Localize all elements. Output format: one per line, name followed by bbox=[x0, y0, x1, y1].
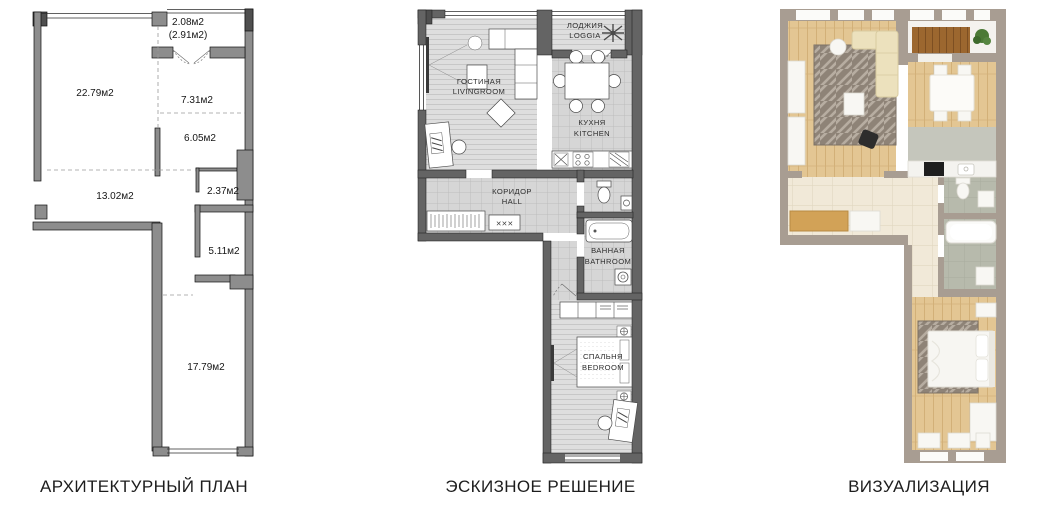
side-table bbox=[844, 93, 864, 115]
living-label-ru: ГОСТИНАЯ bbox=[457, 77, 501, 86]
hall-area: 13.02м2 bbox=[96, 191, 134, 202]
sink-icon bbox=[958, 164, 974, 175]
caption-visualization: ВИЗУАЛИЗАЦИЯ bbox=[800, 477, 1038, 497]
loggia-label-en: LOGGIA bbox=[569, 31, 601, 40]
toilet-icon bbox=[597, 181, 611, 203]
bathroom-label-ru: ВАННАЯ bbox=[591, 246, 625, 255]
dining-table bbox=[930, 75, 974, 111]
kitchen-area: 7.31м2 bbox=[181, 95, 213, 106]
cooktop-icon bbox=[924, 162, 944, 176]
bedroom-label-en: BEDROOM bbox=[582, 363, 624, 372]
bedroom-desk-icon bbox=[608, 400, 637, 443]
shoe-rack-marks: ✕✕✕ bbox=[496, 221, 514, 228]
hall-label-ru: КОРИДОР bbox=[492, 187, 532, 196]
bedroom-wardrobe-icon bbox=[560, 302, 632, 318]
wardrobe-icon bbox=[427, 211, 485, 231]
walls bbox=[33, 9, 253, 456]
living-label-en: LIVINGROOM bbox=[453, 87, 506, 96]
media-unit bbox=[788, 61, 805, 113]
desk-icon bbox=[425, 122, 453, 168]
sketch-plan: ✕✕✕ bbox=[415, 5, 660, 465]
toilet-icon bbox=[957, 183, 969, 199]
balcony-area: 2.08м2 bbox=[172, 17, 204, 28]
shoe-rack-icon: ✕✕✕ bbox=[489, 215, 520, 230]
caption-architectural-plan: АРХИТЕКТУРНЫЙ ПЛАН bbox=[28, 477, 260, 497]
balcony-area-alt: (2.91м2) bbox=[169, 30, 208, 41]
kitchen-counter-icon bbox=[552, 151, 632, 168]
kitchen-label-en: KITCHEN bbox=[574, 129, 610, 138]
kitchen-counter bbox=[908, 161, 996, 177]
washbasin-icon bbox=[621, 196, 632, 210]
bench-icon bbox=[790, 211, 848, 231]
bed-icon bbox=[928, 331, 995, 387]
kitchen-label-ru: КУХНЯ bbox=[578, 118, 605, 127]
balcony-door-icon bbox=[173, 50, 210, 64]
hall-column-floor bbox=[908, 235, 938, 297]
loggia-label-ru: ЛОДЖИЯ bbox=[567, 21, 603, 30]
hallway-furniture bbox=[790, 211, 880, 231]
round-table bbox=[830, 39, 846, 55]
bedroom-chair-icon bbox=[598, 416, 612, 430]
loggia-deck bbox=[912, 27, 970, 53]
radiator-icon bbox=[617, 326, 631, 337]
visualization-render bbox=[772, 5, 1012, 470]
shoe-cabinet bbox=[850, 211, 880, 231]
hall-label-en: HALL bbox=[502, 197, 523, 206]
window-bench-3 bbox=[976, 433, 990, 448]
bathroom-area: 5.11м2 bbox=[208, 246, 240, 257]
bedroom-label-ru: СПАЛЬНЯ bbox=[583, 352, 623, 361]
desk-chair-icon bbox=[452, 140, 466, 154]
media-unit-2 bbox=[788, 117, 805, 165]
bedroom-area: 17.79м2 bbox=[187, 362, 225, 373]
bathtub-icon bbox=[586, 220, 632, 242]
living-area: 22.79м2 bbox=[76, 88, 114, 99]
window-bench bbox=[918, 433, 940, 448]
washbasin-icon bbox=[978, 191, 994, 207]
dining-area: 6.05м2 bbox=[184, 133, 216, 144]
plant-icon bbox=[602, 24, 624, 42]
caption-sketch: ЭСКИЗНОЕ РЕШЕНИЕ bbox=[418, 477, 663, 497]
washing-machine-icon bbox=[615, 269, 631, 285]
bed-icon bbox=[577, 337, 632, 387]
bath-sink-icon bbox=[976, 267, 994, 285]
dresser bbox=[976, 303, 996, 317]
hall-column-floor bbox=[550, 241, 577, 300]
bathroom-label-en: BATHROOM bbox=[585, 257, 632, 266]
ceiling-light-icon bbox=[468, 36, 482, 50]
wc-area: 2.37м2 bbox=[207, 186, 239, 197]
window-bench-2 bbox=[948, 433, 970, 448]
architectural-plan: 2.08м2 (2.91м2) 22.79м2 7.31м2 6.05м2 13… bbox=[30, 8, 256, 460]
